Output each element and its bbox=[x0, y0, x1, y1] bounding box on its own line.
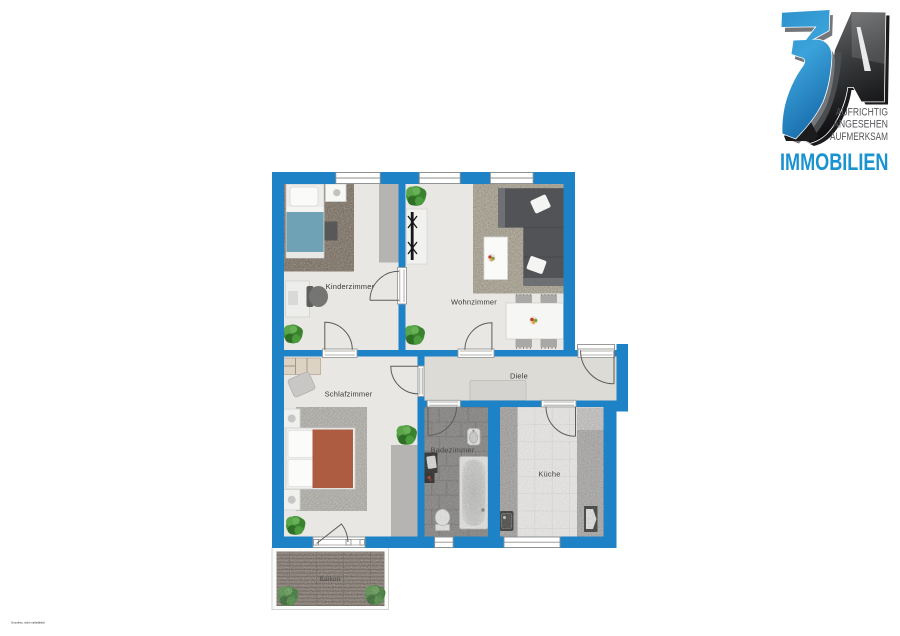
svg-text:Schlafzimmer: Schlafzimmer bbox=[325, 390, 373, 399]
svg-text:AUFRICHTIG: AUFRICHTIG bbox=[836, 106, 888, 118]
svg-text:Diele: Diele bbox=[510, 372, 528, 381]
svg-text:AUFMERKSAM: AUFMERKSAM bbox=[830, 131, 888, 143]
svg-text:IMMOBILIEN: IMMOBILIEN bbox=[780, 149, 889, 176]
svg-text:Balkon: Balkon bbox=[319, 576, 340, 583]
svg-text:ANGESEHEN: ANGESEHEN bbox=[833, 119, 888, 131]
svg-text:Grundriss, nicht maßstäblich: Grundriss, nicht maßstäblich bbox=[11, 621, 45, 625]
svg-text:Kinderzimmer: Kinderzimmer bbox=[326, 282, 375, 291]
svg-text:Wohnzimmer: Wohnzimmer bbox=[451, 298, 497, 307]
